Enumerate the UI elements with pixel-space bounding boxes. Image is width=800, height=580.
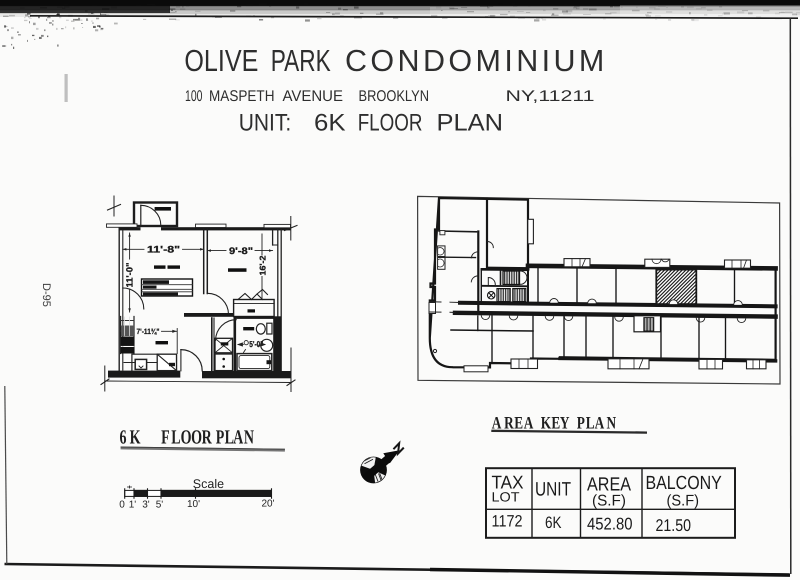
svg-text:9'-8": 9'-8" — [229, 246, 253, 257]
svg-text:(S.F): (S.F) — [592, 493, 626, 510]
svg-text:10': 10' — [187, 499, 200, 510]
svg-text:5': 5' — [156, 500, 164, 511]
svg-text:11'-0": 11'-0" — [125, 263, 135, 288]
svg-text:Scale: Scale — [193, 477, 224, 491]
svg-text:100MASPETHAVENUEBROOKLYNNY,112: 100MASPETHAVENUEBROOKLYNNY,11211 — [185, 88, 595, 105]
svg-text:11'-8": 11'-8" — [147, 244, 180, 255]
svg-text:1': 1' — [129, 500, 137, 511]
svg-text:452.80: 452.80 — [587, 515, 633, 534]
svg-text:21.50: 21.50 — [656, 516, 692, 535]
svg-text:UNIT:6KFLOORPLAN: UNIT:6KFLOORPLAN — [239, 110, 503, 137]
svg-text:(S.F): (S.F) — [667, 493, 700, 510]
svg-text:6K: 6K — [545, 514, 562, 532]
svg-text:7'-11¾": 7'-11¾" — [137, 327, 160, 336]
svg-text:0: 0 — [119, 500, 125, 511]
svg-text:OLIVEPARKCONDOMINIUM: OLIVEPARKCONDOMINIUM — [184, 44, 607, 78]
svg-text:3': 3' — [142, 500, 150, 511]
svg-text:16'-2: 16'-2 — [257, 255, 267, 275]
svg-text:1172: 1172 — [492, 513, 523, 531]
svg-text:BALCONY: BALCONY — [646, 473, 723, 494]
svg-text:UNIT: UNIT — [535, 479, 571, 501]
svg-text:LOT: LOT — [492, 490, 520, 505]
svg-text:20': 20' — [261, 499, 274, 510]
svg-text:D-95: D-95 — [40, 283, 52, 307]
svg-text:AREAKEYPLAN: AREAKEYPLAN — [492, 412, 617, 432]
svg-text:6KFLOORPLAN: 6KFLOORPLAN — [119, 427, 254, 449]
